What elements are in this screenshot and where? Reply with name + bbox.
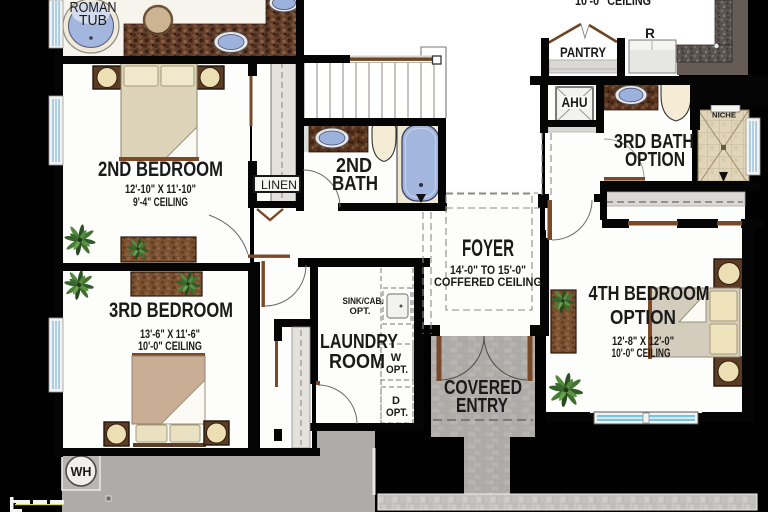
svg-text:4TH BEDROOM: 4TH BEDROOM <box>589 282 710 305</box>
svg-text:3RD BEDROOM: 3RD BEDROOM <box>109 299 233 322</box>
svg-text:12'-8" X 12'-0": 12'-8" X 12'-0" <box>612 336 674 348</box>
svg-text:AHU: AHU <box>562 95 588 110</box>
svg-text:OPT.: OPT. <box>386 364 408 376</box>
svg-text:TUB: TUB <box>79 13 107 29</box>
svg-text:PANTRY: PANTRY <box>560 45 606 60</box>
svg-text:OPTION: OPTION <box>610 306 676 329</box>
svg-text:12'-10" X 11'-10": 12'-10" X 11'-10" <box>125 184 196 196</box>
svg-text:OPT.: OPT. <box>350 306 371 317</box>
svg-text:10'-0" CEILING: 10'-0" CEILING <box>138 341 202 353</box>
svg-text:9'-4" CEILING: 9'-4" CEILING <box>133 197 188 209</box>
svg-text:2ND BEDROOM: 2ND BEDROOM <box>98 158 223 181</box>
svg-text:W: W <box>391 352 402 364</box>
svg-text:BATH: BATH <box>332 173 378 195</box>
svg-text:OPTION: OPTION <box>625 148 685 171</box>
svg-text:OPT.: OPT. <box>386 407 408 419</box>
svg-text:FOYER: FOYER <box>462 235 514 262</box>
svg-text:13'-6" X 11'-6": 13'-6" X 11'-6" <box>140 329 200 341</box>
svg-text:COFFERED CEILING: COFFERED CEILING <box>434 275 542 289</box>
svg-text:D: D <box>392 395 400 407</box>
svg-text:LINEN: LINEN <box>261 180 297 192</box>
svg-text:WH: WH <box>71 465 92 479</box>
svg-text:10'-0" CEILING: 10'-0" CEILING <box>575 0 651 8</box>
svg-text:R: R <box>645 26 655 41</box>
svg-text:NICHE: NICHE <box>712 111 736 120</box>
svg-text:ENTRY: ENTRY <box>456 395 509 417</box>
svg-text:10'-0" CEILING: 10'-0" CEILING <box>612 348 671 360</box>
svg-text:ROOM: ROOM <box>329 350 385 373</box>
